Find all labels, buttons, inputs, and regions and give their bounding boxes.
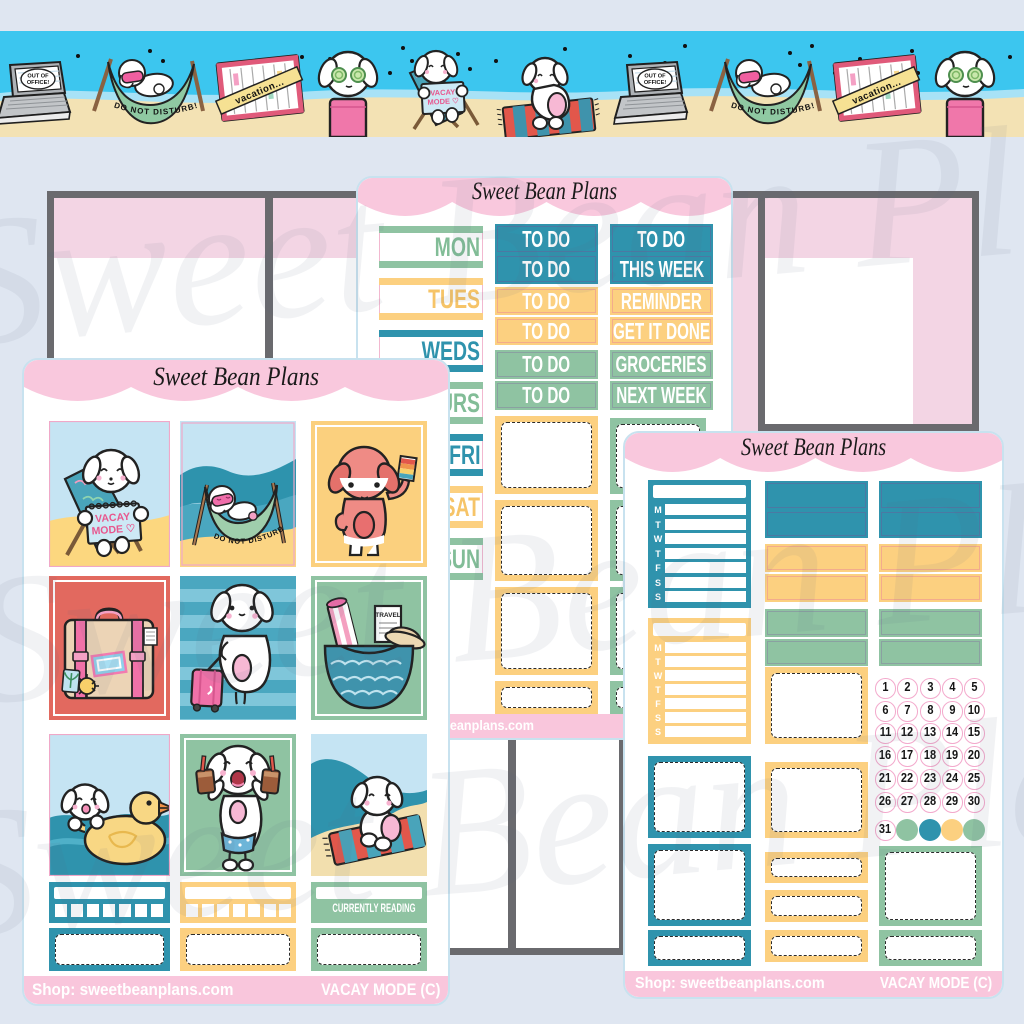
svg-text:TRAVEL: TRAVEL <box>375 612 401 619</box>
